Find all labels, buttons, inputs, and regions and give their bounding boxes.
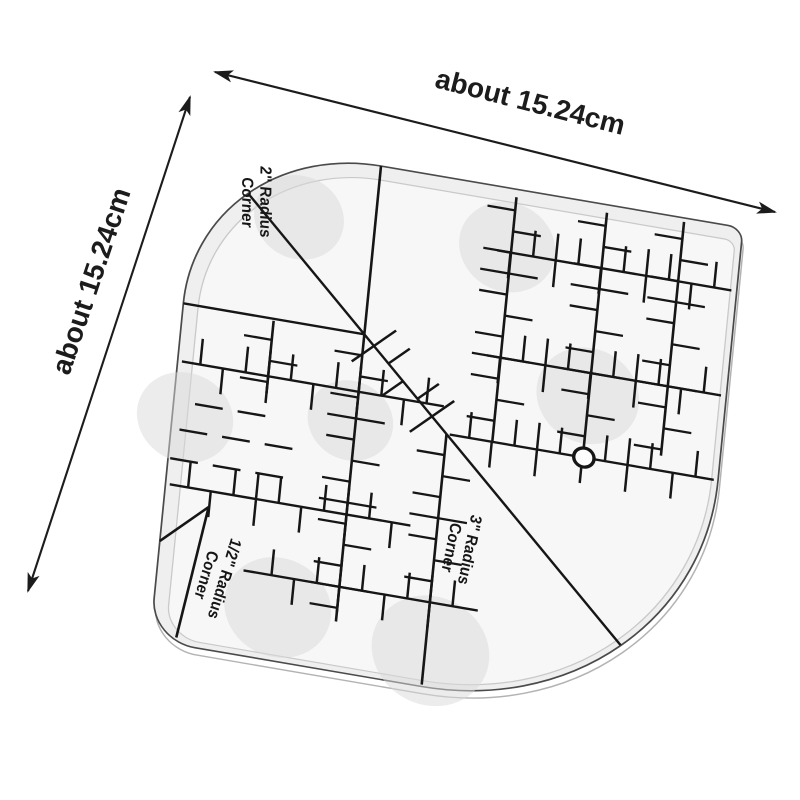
- corner-label-2in-line1: 2" Radius: [256, 165, 274, 238]
- left-dimension-label: about 15.24cm: [45, 184, 136, 378]
- ruler-photo-canvas: about 15.24cm about 15.24cm 2" Radius Co…: [0, 0, 800, 800]
- radius-corner-ruler: 2" Radius Corner 1/2" Radius Corner 3" R…: [113, 129, 745, 751]
- top-dimension-label: about 15.24cm: [432, 63, 628, 141]
- product-photo: about 15.24cm about 15.24cm 2" Radius Co…: [0, 0, 800, 800]
- corner-label-2in-line2: Corner: [238, 177, 256, 229]
